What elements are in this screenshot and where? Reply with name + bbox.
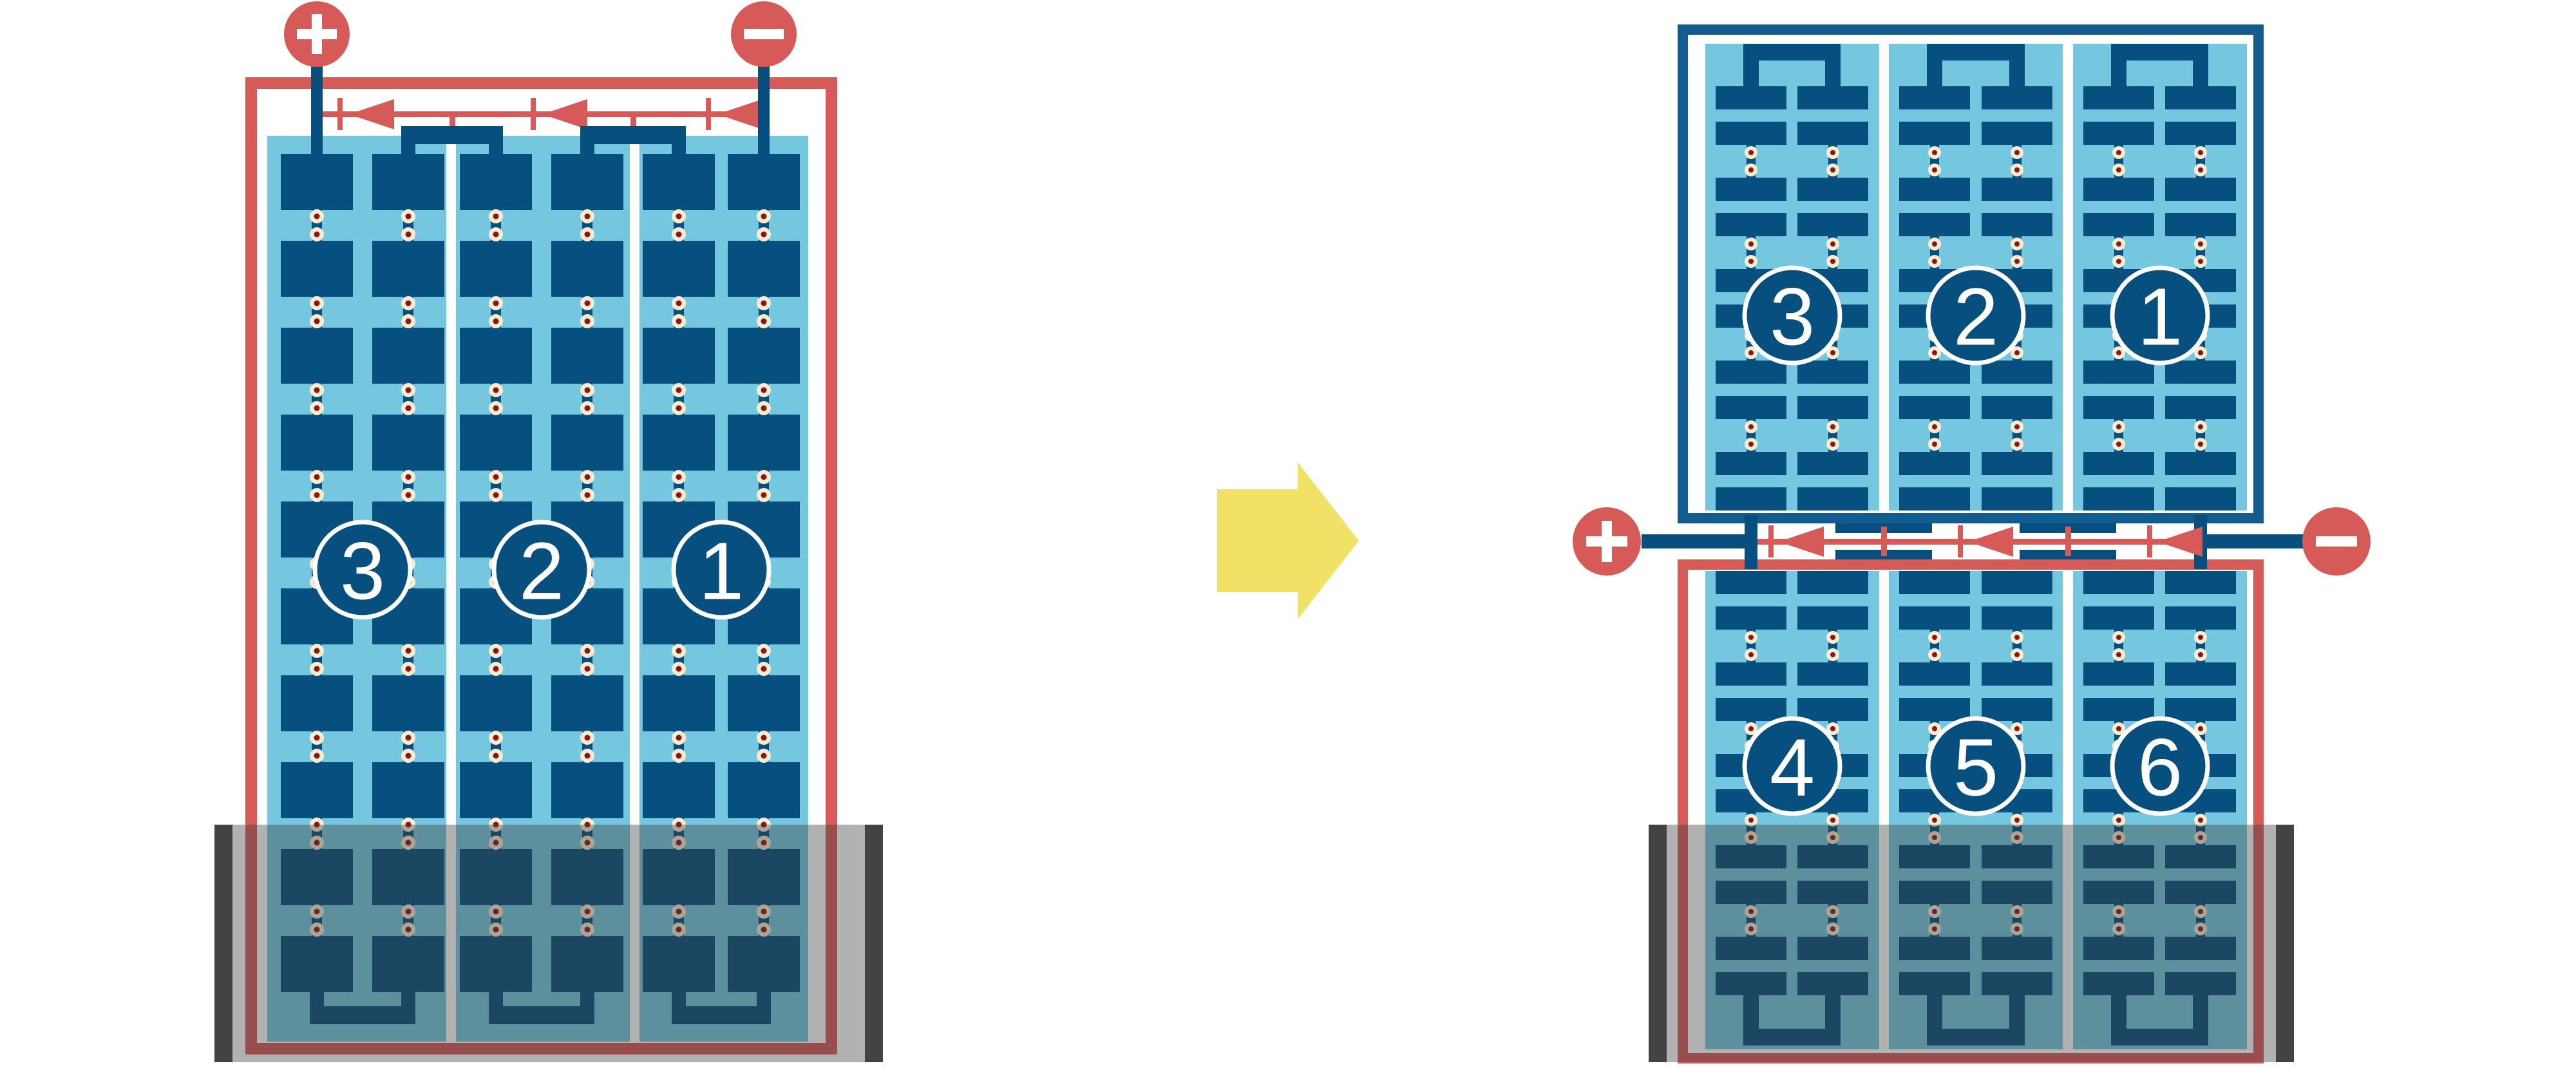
solder-dot-core <box>676 648 682 654</box>
solder-dot-core <box>1932 350 1937 355</box>
string-number: 3 <box>340 525 385 616</box>
solder-dot-core <box>1748 818 1754 823</box>
solder-dot-core <box>2116 726 2121 731</box>
solder-dot-core <box>761 232 767 238</box>
solder-dot-core <box>585 492 591 498</box>
solar-cell <box>1797 487 1868 511</box>
solder-dot-core <box>1830 241 1835 247</box>
solder-dot-core <box>1830 350 1835 355</box>
right-top-module: 3 2 1 <box>1683 30 2259 518</box>
arrow-right-icon <box>1217 462 1359 619</box>
solder-dot-core <box>761 492 767 498</box>
string-number: 2 <box>519 525 564 616</box>
solar-cell <box>551 154 623 210</box>
solar-cell <box>372 241 444 297</box>
solder-dot-core <box>314 735 320 741</box>
string-top-connector-leg <box>2009 44 2025 86</box>
solder-dot-core <box>1748 424 1754 429</box>
solder-dot-core <box>1932 150 1937 155</box>
solder-dot-core <box>585 666 591 672</box>
string-number: 1 <box>699 525 744 616</box>
solder-dot-core <box>493 319 499 324</box>
solar-cell <box>460 675 532 731</box>
solder-dot-core <box>1748 241 1754 247</box>
solder-dot-core <box>585 232 591 238</box>
string-number: 2 <box>1953 271 1998 362</box>
left-shade-overlay <box>214 825 883 1062</box>
solder-dot-core <box>493 735 499 741</box>
solder-dot-core <box>1830 652 1835 657</box>
solar-cell <box>2083 86 2154 109</box>
solder-dot-core <box>2198 350 2203 355</box>
solder-dot-core <box>314 301 320 306</box>
solder-dot-core <box>1748 150 1754 155</box>
solder-dot-core <box>314 214 320 220</box>
solder-dot-core <box>761 648 767 654</box>
solar-cell <box>551 762 623 818</box>
solar-cell <box>281 328 353 384</box>
string-number: 5 <box>1953 722 1998 812</box>
solder-dot-core <box>1830 150 1835 155</box>
solar-cell <box>372 154 444 210</box>
solder-dot-core <box>1932 424 1937 429</box>
diode-tap-wire <box>1881 527 1887 556</box>
diode-tap-wire <box>2065 527 2071 556</box>
solder-dot-core <box>406 388 412 393</box>
solder-dot-core <box>2116 424 2121 429</box>
shade-edge-bar <box>1649 825 1667 1062</box>
shade-panel <box>214 825 883 1062</box>
solder-dot-core <box>2198 259 2203 264</box>
solder-dot-core <box>2014 726 2020 731</box>
solder-dot-core <box>761 753 767 759</box>
solder-dot-core <box>585 319 591 324</box>
solder-dot-core <box>676 753 682 759</box>
solder-dot-core <box>2198 442 2203 447</box>
solder-dot-core <box>1830 167 1835 173</box>
solar-cell <box>1899 571 1970 594</box>
solder-dot-core <box>585 301 591 306</box>
solder-dot-core <box>2116 167 2121 173</box>
solar-cell <box>372 415 444 471</box>
right-shade-overlay <box>1649 825 2294 1062</box>
solder-dot-core <box>406 492 412 498</box>
solder-dot-core <box>585 214 591 220</box>
negative-busbar <box>2206 534 2304 548</box>
solder-dot-core <box>406 735 412 741</box>
right-top-string-label-2: 2 <box>1928 268 2023 363</box>
solar-cell <box>643 675 715 731</box>
junction-riser <box>1745 515 1757 569</box>
solar-cell <box>460 415 532 471</box>
solar-cell <box>281 675 353 731</box>
positive-busbar <box>1642 534 1746 548</box>
solder-dot-core <box>761 406 767 411</box>
right-top-string-label-1: 1 <box>2112 268 2208 363</box>
left-string-label-2: 2 <box>494 522 589 617</box>
solder-dot-core <box>314 753 320 759</box>
solar-cell <box>728 328 800 384</box>
solder-dot-core <box>493 388 499 393</box>
solder-dot-core <box>2116 442 2121 447</box>
solar-cell <box>1982 487 2052 511</box>
solder-dot-core <box>1830 424 1835 429</box>
solar-cell <box>643 241 715 297</box>
solar-cell <box>372 328 444 384</box>
solder-dot-core <box>406 301 412 306</box>
solder-dot-core <box>2014 150 2020 155</box>
solder-dot-core <box>493 753 499 759</box>
solder-dot-core <box>1830 259 1835 264</box>
solder-dot-core <box>676 406 682 411</box>
solar-cell <box>281 415 353 471</box>
solder-dot-core <box>2014 424 2020 429</box>
solder-dot-core <box>1932 726 1937 731</box>
string-number: 6 <box>2137 722 2183 812</box>
solder-dot-core <box>585 474 591 480</box>
solder-dot-core <box>761 319 767 324</box>
solder-dot-core <box>2198 818 2203 823</box>
left-positive-terminal <box>284 1 350 67</box>
terminal-stem <box>311 65 323 166</box>
solder-dot-core <box>314 232 320 238</box>
solder-dot-core <box>493 648 499 654</box>
solder-dot-core <box>314 648 320 654</box>
solder-dot-core <box>2014 442 2020 447</box>
solder-dot-core <box>761 666 767 672</box>
right-top-string-label-3: 3 <box>1745 268 1840 363</box>
solder-dot-core <box>493 301 499 306</box>
string-top-connector-leg <box>1825 44 1841 86</box>
solder-dot-core <box>2014 818 2020 823</box>
solder-dot-core <box>761 735 767 741</box>
left-negative-terminal <box>731 1 797 67</box>
shade-edge-bar <box>214 825 232 1062</box>
solder-dot-core <box>2116 635 2121 640</box>
solar-cell <box>2165 487 2236 511</box>
solder-dot-core <box>493 406 499 411</box>
left-string-label-3: 3 <box>315 522 410 617</box>
solar-cell <box>551 241 623 297</box>
solar-cell <box>1982 86 2052 109</box>
solder-dot-core <box>676 666 682 672</box>
solder-dot-core <box>676 214 682 220</box>
solder-dot-core <box>406 232 412 238</box>
solar-cell <box>728 154 800 210</box>
solder-dot-core <box>2014 350 2020 355</box>
solar-cell <box>2165 571 2236 594</box>
shade-edge-bar <box>2276 825 2294 1062</box>
solder-dot-core <box>2116 350 2121 355</box>
solder-dot-core <box>761 388 767 393</box>
solder-dot-core <box>314 492 320 498</box>
solder-dot-core <box>676 474 682 480</box>
solder-dot-core <box>761 301 767 306</box>
solder-dot-core <box>585 406 591 411</box>
solar-cell <box>551 328 623 384</box>
solder-dot-core <box>2116 241 2121 247</box>
solder-dot-core <box>676 319 682 324</box>
solder-dot-core <box>585 388 591 393</box>
solder-dot-core <box>2014 167 2020 173</box>
solar-cell <box>372 675 444 731</box>
solder-dot-core <box>493 492 499 498</box>
solder-dot-core <box>676 301 682 306</box>
solar-cell <box>2165 86 2236 109</box>
solder-dot-core <box>2198 241 2203 247</box>
solar-cell <box>551 415 623 471</box>
solder-dot-core <box>2198 424 2203 429</box>
terminal-stem <box>758 65 770 166</box>
solder-dot-core <box>676 492 682 498</box>
solder-dot-core <box>761 474 767 480</box>
solar-cell <box>728 415 800 471</box>
solder-dot-core <box>1830 726 1835 731</box>
solar-cell <box>372 762 444 818</box>
minus-icon <box>2316 536 2357 547</box>
solar-cell <box>643 415 715 471</box>
solder-dot-core <box>406 406 412 411</box>
string-top-connector-leg <box>1927 44 1942 86</box>
string-top-connector <box>580 126 686 144</box>
solar-cell <box>1797 86 1868 109</box>
solder-dot-core <box>406 214 412 220</box>
solder-dot-core <box>585 753 591 759</box>
solder-dot-core <box>761 214 767 220</box>
solder-dot-core <box>1932 241 1937 247</box>
solder-dot-core <box>493 474 499 480</box>
solder-dot-core <box>1748 259 1754 264</box>
solar-cell <box>460 241 532 297</box>
solder-dot-core <box>1830 442 1835 447</box>
solder-dot-core <box>493 214 499 220</box>
solder-dot-core <box>1932 442 1937 447</box>
string-top-connector-leg <box>2193 44 2208 86</box>
solder-dot-core <box>314 474 320 480</box>
solder-dot-core <box>2198 167 2203 173</box>
minus-icon <box>744 29 784 39</box>
solar-cell <box>460 762 532 818</box>
solder-dot-core <box>2116 818 2121 823</box>
left-string-label-1: 1 <box>674 522 769 617</box>
solder-dot-core <box>2198 652 2203 657</box>
solder-dot-core <box>676 735 682 741</box>
solder-dot-core <box>2014 635 2020 640</box>
solder-dot-core <box>1932 652 1937 657</box>
solder-dot-core <box>1932 635 1937 640</box>
right-bottom-string-label-4: 4 <box>1745 718 1840 814</box>
solder-dot-core <box>1932 818 1937 823</box>
solder-dot-core <box>1748 442 1754 447</box>
solar-cell <box>1899 487 1970 511</box>
solar-cell <box>1899 86 1970 109</box>
solder-dot-core <box>2116 652 2121 657</box>
solder-dot-core <box>493 232 499 238</box>
solar-cell <box>2083 487 2154 511</box>
solder-dot-core <box>493 666 499 672</box>
solar-cell <box>1797 571 1868 594</box>
solder-dot-core <box>585 648 591 654</box>
solder-dot-core <box>406 666 412 672</box>
solar-module-wiring-diagram: 3 2 1 3 2 1 <box>0 0 2576 1068</box>
solder-dot-core <box>2116 259 2121 264</box>
solder-dot-core <box>2116 150 2121 155</box>
right-bottom-string-label-6: 6 <box>2112 718 2208 814</box>
solder-dot-core <box>406 474 412 480</box>
solar-cell <box>643 762 715 818</box>
solar-cell <box>1716 571 1786 594</box>
junction-negative-terminal <box>2302 507 2371 576</box>
solder-dot-core <box>2198 726 2203 731</box>
solder-dot-core <box>314 388 320 393</box>
shade-edge-bar <box>865 825 883 1062</box>
solder-dot-core <box>406 648 412 654</box>
left-bypass-diode-row <box>317 98 764 133</box>
solder-dot-core <box>2014 241 2020 247</box>
solder-dot-core <box>1748 635 1754 640</box>
string-top-connector <box>401 126 503 144</box>
solar-cell <box>643 154 715 210</box>
solar-cell <box>1716 86 1786 109</box>
solder-dot-core <box>1748 652 1754 657</box>
solar-cell <box>1982 571 2052 594</box>
solder-dot-core <box>585 735 591 741</box>
solder-dot-core <box>406 319 412 324</box>
solder-dot-core <box>406 753 412 759</box>
solder-dot-core <box>1748 167 1754 173</box>
solar-cell <box>281 762 353 818</box>
junction-bypass-diode-row <box>1757 525 2202 557</box>
solar-cell <box>281 154 353 210</box>
solar-cell <box>460 154 532 210</box>
string-top-connector-leg <box>1743 44 1759 86</box>
solder-dot-core <box>2014 652 2020 657</box>
solar-cell <box>643 328 715 384</box>
solder-dot-core <box>1932 167 1937 173</box>
solder-dot-core <box>1748 726 1754 731</box>
solder-dot-core <box>1932 259 1937 264</box>
solar-cell <box>728 241 800 297</box>
string-top-connector-leg <box>2111 44 2126 86</box>
solder-dot-core <box>314 666 320 672</box>
string-number: 4 <box>1770 722 1815 812</box>
solder-dot-core <box>2198 635 2203 640</box>
solder-dot-core <box>2198 150 2203 155</box>
solder-dot-core <box>1748 350 1754 355</box>
solar-cell <box>460 328 532 384</box>
solder-dot-core <box>1830 635 1835 640</box>
solder-dot-core <box>676 388 682 393</box>
string-number: 1 <box>2137 271 2183 362</box>
solar-cell <box>551 675 623 731</box>
junction-positive-terminal <box>1573 507 1641 576</box>
right-bottom-string-label-5: 5 <box>1928 718 2023 814</box>
solder-dot-core <box>314 319 320 324</box>
solar-cell <box>728 675 800 731</box>
string-number: 3 <box>1770 271 1815 362</box>
solder-dot-core <box>1830 818 1835 823</box>
solder-dot-core <box>314 406 320 411</box>
solar-cell <box>2083 571 2154 594</box>
solar-cell <box>1716 487 1786 511</box>
solar-cell <box>281 241 353 297</box>
solar-cell <box>728 762 800 818</box>
solder-dot-core <box>676 232 682 238</box>
shade-panel <box>1649 825 2294 1062</box>
solder-dot-core <box>2014 259 2020 264</box>
